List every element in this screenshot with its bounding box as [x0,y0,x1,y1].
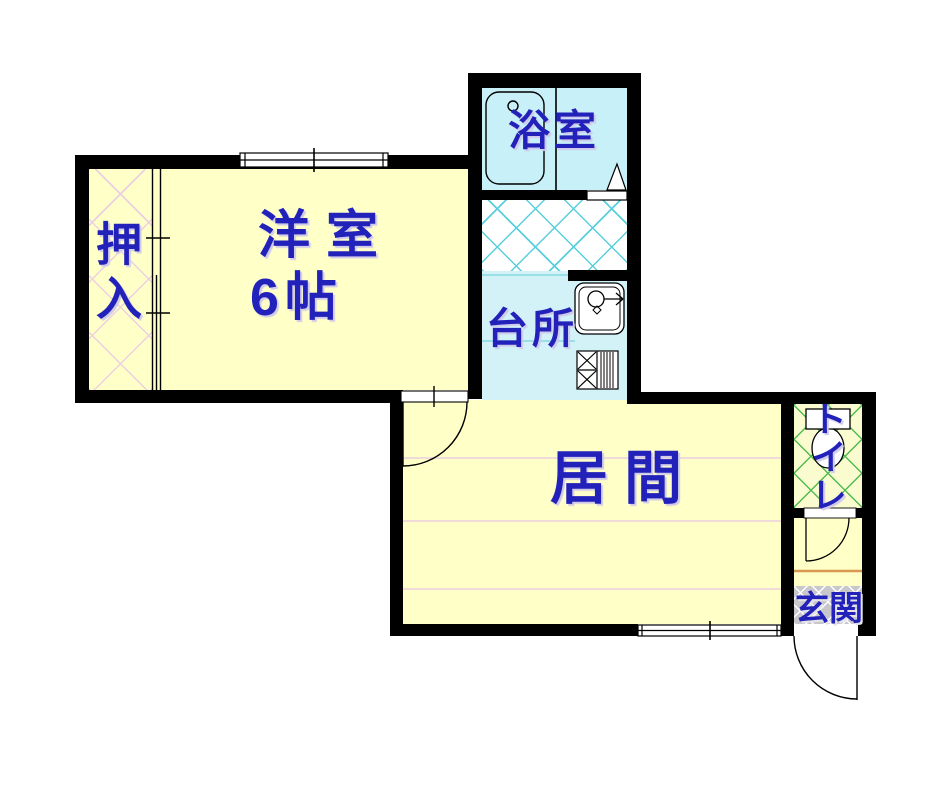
kitchen-label: 台所 [486,308,578,350]
living-room-label: 居間 [550,450,698,508]
western-room-label: 洋室 [258,210,394,262]
window-symbol [638,621,781,640]
door-swing-arc [401,386,468,466]
bathroom-label: 浴室 [508,110,600,152]
gas-stove-icon [577,351,618,389]
entrance-label: 玄関 [795,592,863,626]
closet-label: 押入 [93,220,139,328]
kitchen-sink-icon [575,283,624,334]
sliding-door-symbol [146,169,170,390]
western-room-size-label: 6帖 [250,272,343,324]
door-swing-arc [804,508,856,561]
bath-door-triangle [587,164,627,200]
toilet-label: トイレ [808,400,844,514]
fixtures-overlay [0,0,946,789]
door-swing-arc [794,626,858,700]
window-symbol [240,148,388,172]
floor-plan: 浴室 台所 洋室 6帖 押入 居間 トイレ 玄関 [0,0,946,789]
